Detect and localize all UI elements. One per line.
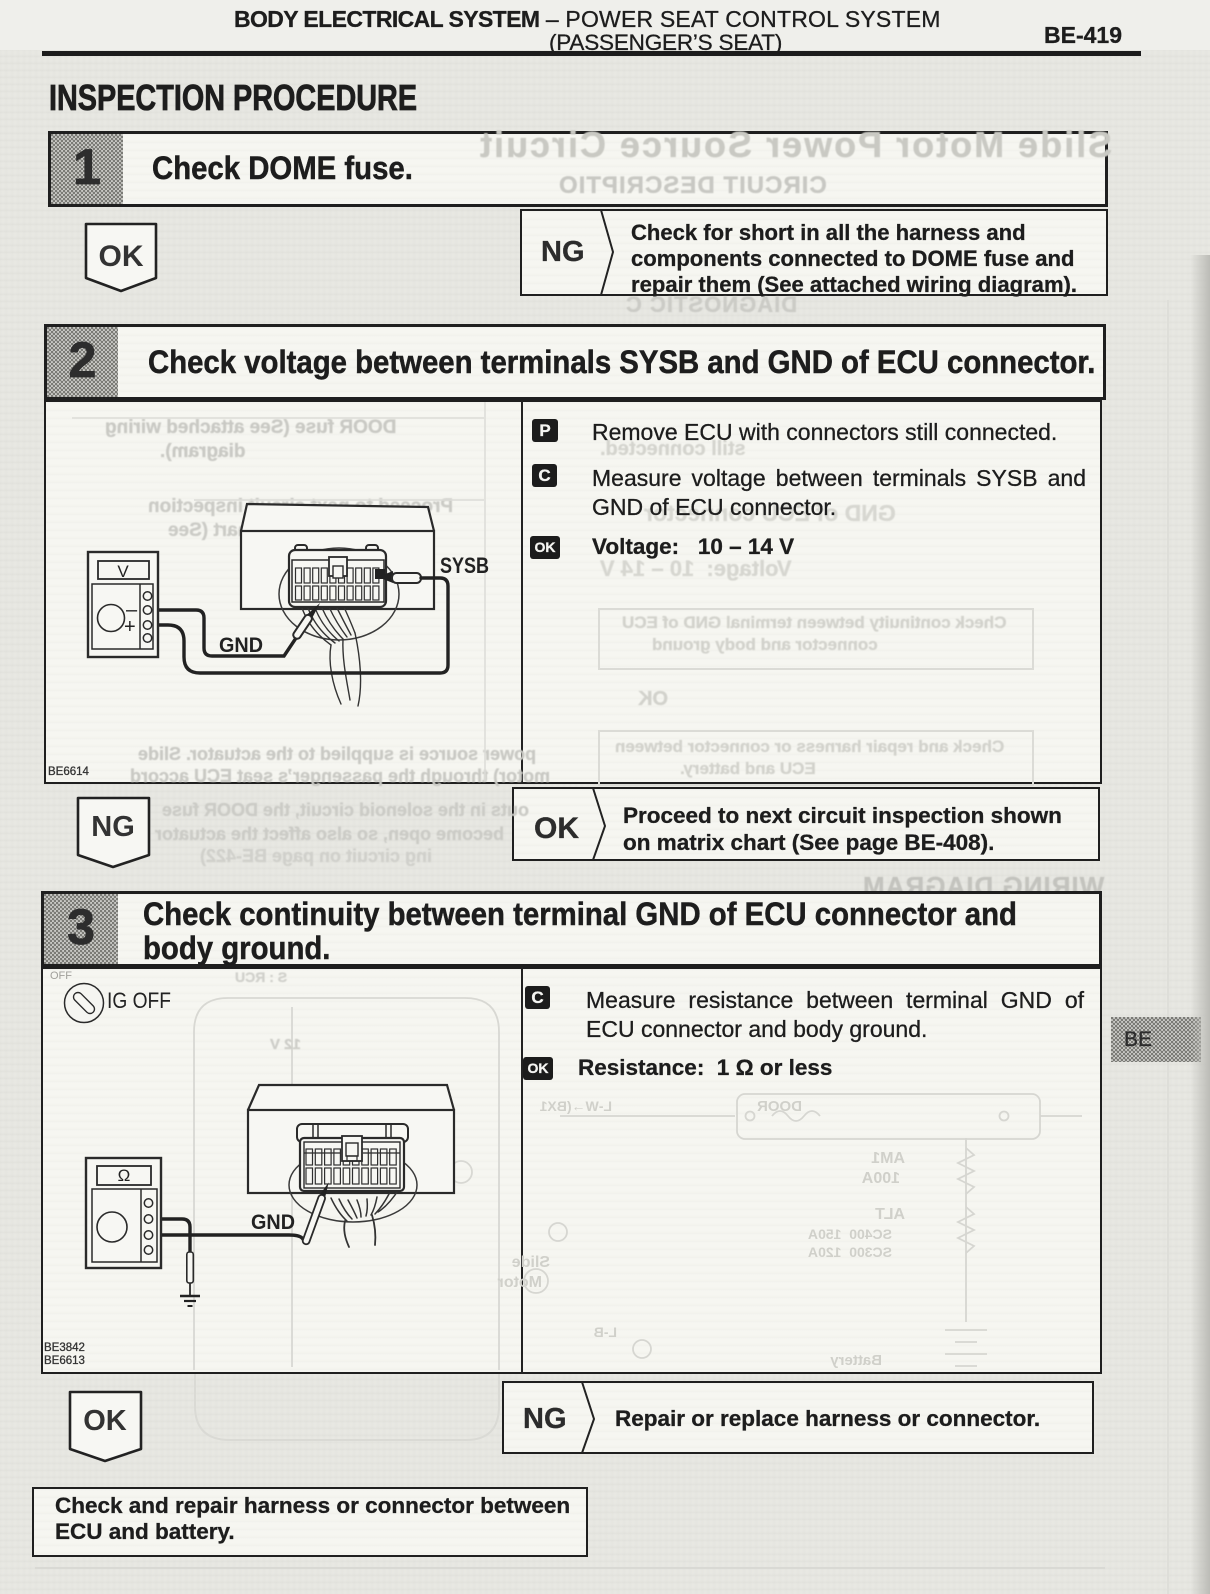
svg-text:ALT: ALT [875, 1206, 905, 1223]
svg-text:OFF: OFF [50, 970, 72, 982]
svg-text:Motor: Motor [498, 1274, 542, 1291]
svg-text:Battery: Battery [830, 1352, 882, 1369]
svg-text:SYSB: SYSB [440, 553, 489, 578]
svg-text:L-B: L-B [594, 1324, 617, 1340]
svg-text:SC300 120A: SC300 120A [808, 1244, 892, 1260]
svg-text:Slide: Slide [512, 1254, 550, 1271]
svg-text:NG: NG [91, 811, 135, 843]
svg-text:100A: 100A [861, 1170, 900, 1187]
svg-text:+: + [124, 616, 136, 638]
svg-text:AM1: AM1 [871, 1150, 905, 1167]
svg-text:OK: OK [99, 240, 144, 273]
svg-text:GND: GND [251, 1211, 295, 1234]
svg-text:SC400 150A: SC400 150A [808, 1226, 892, 1242]
svg-text:V: V [117, 562, 129, 581]
svg-text:IG OFF: IG OFF [107, 988, 171, 1013]
svg-text:DOOR: DOOR [757, 1098, 802, 1115]
svg-text:Ω: Ω [118, 1166, 131, 1185]
svg-text:OK: OK [83, 1405, 127, 1437]
svg-text:L-W→(BX1: L-W→(BX1 [539, 1098, 612, 1114]
svg-text:GND: GND [219, 634, 263, 657]
